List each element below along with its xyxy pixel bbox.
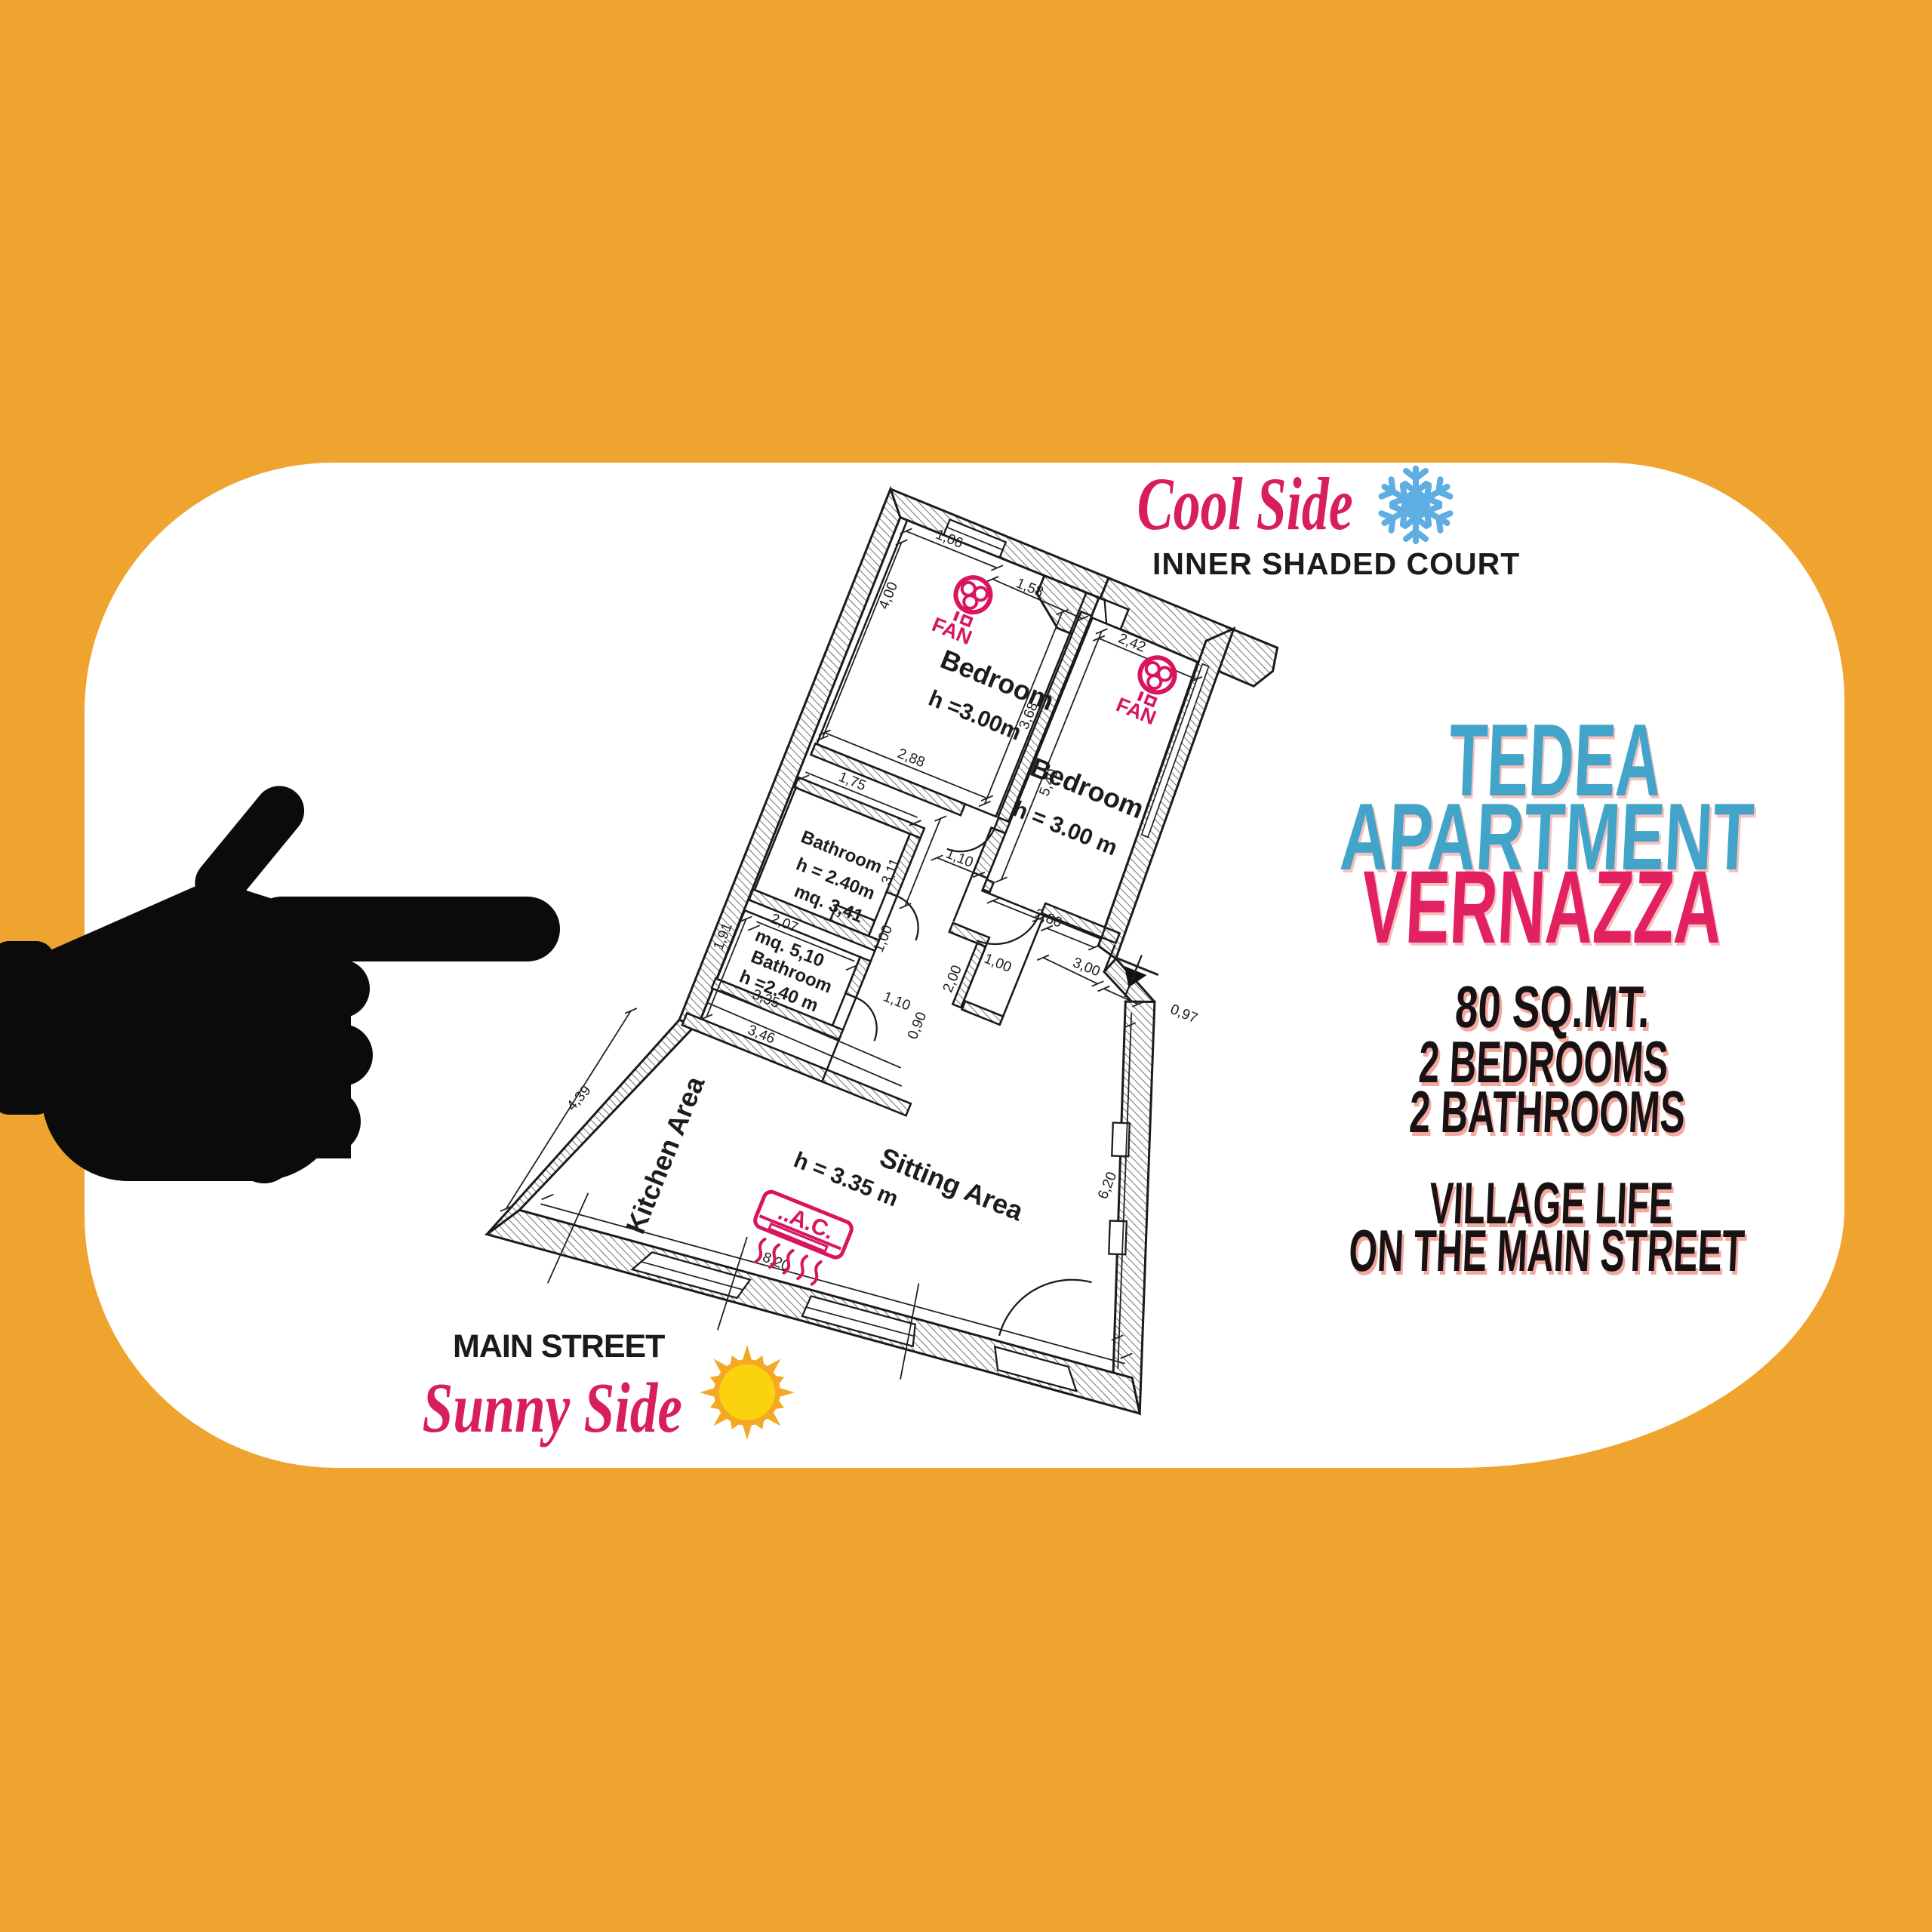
svg-text:1,10: 1,10: [881, 989, 912, 1014]
svg-text:1,00: 1,00: [982, 951, 1014, 976]
svg-text:6,20: 6,20: [1095, 1170, 1120, 1201]
svg-text:3,00: 3,00: [1070, 955, 1102, 980]
svg-text:1,58: 1,58: [1014, 575, 1045, 600]
svg-text:Sitting Area: Sitting Area: [875, 1141, 1028, 1227]
svg-text:4,00: 4,00: [876, 580, 901, 611]
svg-text:1,00: 1,00: [871, 923, 896, 955]
svg-text:0,90: 0,90: [905, 1010, 930, 1041]
svg-text:Kitchen Area: Kitchen Area: [620, 1071, 711, 1238]
